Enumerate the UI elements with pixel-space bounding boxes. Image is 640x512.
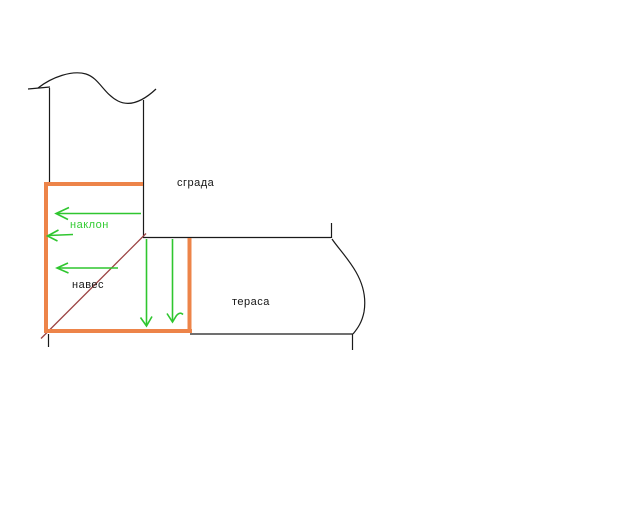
arrow-left-short	[48, 230, 74, 241]
canopy-outline	[44, 182, 192, 333]
arrow-down-second	[167, 239, 183, 322]
plan-sketch	[0, 0, 640, 512]
terrace-break-line	[332, 239, 365, 334]
stray-dot	[103, 409, 106, 412]
building-terrace-outline	[28, 73, 365, 350]
arrow-down-first	[141, 239, 153, 326]
arrow-left-short-shaft	[48, 235, 73, 236]
arrow-left-long	[56, 208, 141, 220]
slope-arrows	[48, 208, 184, 327]
label-building: сграда	[177, 177, 214, 189]
label-slope: наклон	[70, 219, 109, 231]
paint-canvas: сграда наклон навес тераса	[0, 0, 640, 512]
building-break-line	[38, 73, 156, 104]
label-terrace: тераса	[232, 296, 270, 308]
label-canopy: навес	[72, 279, 104, 291]
arrow-down-second-head	[167, 313, 183, 322]
